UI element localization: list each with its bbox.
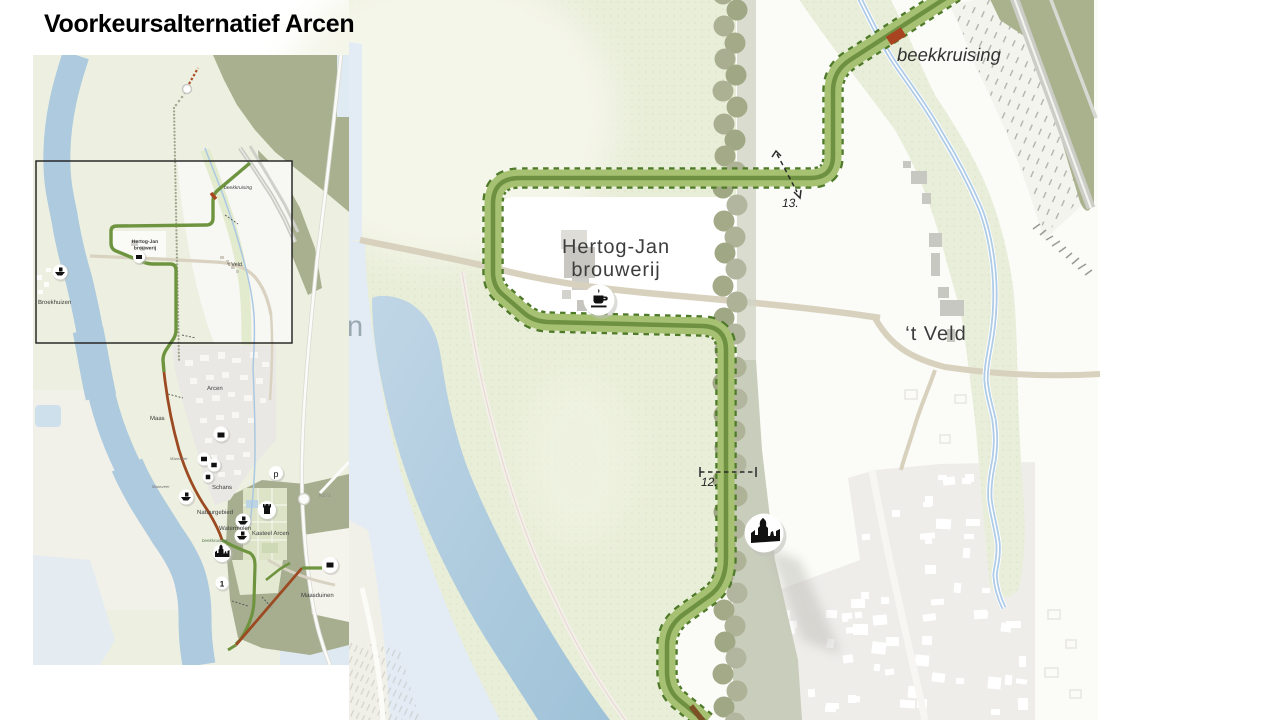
svg-text:Hertog-Jan: Hertog-Jan — [132, 239, 158, 245]
svg-text:Maas: Maas — [150, 415, 165, 422]
svg-text:‘t Veld.: ‘t Veld. — [227, 262, 244, 268]
svg-text:12.: 12. — [701, 475, 718, 489]
svg-text:beekkruising: beekkruising — [224, 185, 252, 191]
svg-text:1: 1 — [220, 580, 225, 589]
svg-text:Maasduinen: Maasduinen — [301, 592, 334, 599]
svg-text:p: p — [273, 469, 278, 479]
svg-text:Broekhuizen: Broekhuizen — [38, 299, 71, 306]
svg-text:N271: N271 — [319, 493, 331, 499]
svg-text:Maasveer: Maasveer — [152, 484, 170, 489]
svg-text:Hertog-Jan: Hertog-Jan — [562, 236, 670, 258]
svg-text:brouwerij: brouwerij — [134, 246, 157, 252]
svg-text:Maasveer: Maasveer — [170, 456, 188, 461]
svg-text:Schans: Schans — [212, 484, 232, 491]
svg-text:n: n — [347, 311, 363, 343]
svg-text:13.: 13. — [782, 196, 799, 210]
svg-text:Natuurgebied: Natuurgebied — [197, 509, 233, 516]
svg-text:beekkruising: beekkruising — [202, 538, 228, 543]
svg-text:beekkruising: beekkruising — [897, 44, 1002, 65]
svg-text:Kasteel Arcen: Kasteel Arcen — [252, 530, 289, 537]
svg-text:brouwerij: brouwerij — [571, 259, 660, 281]
svg-text:Watermolen: Watermolen — [219, 525, 251, 532]
svg-text:Arcen: Arcen — [207, 385, 223, 392]
svg-text:‘t Veld: ‘t Veld — [905, 323, 966, 345]
